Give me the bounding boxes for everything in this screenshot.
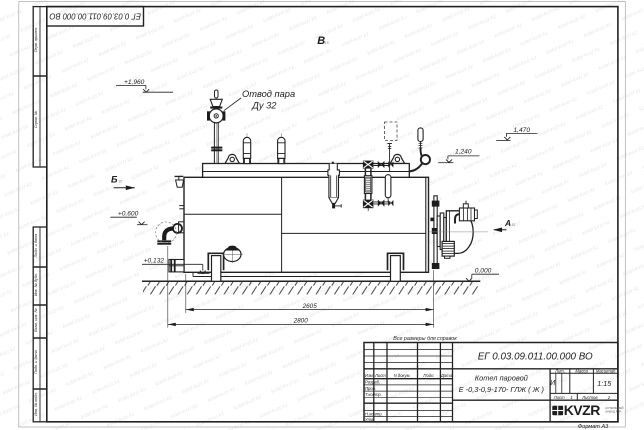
svg-text:kotel-kvzr.kz: kotel-kvzr.kz	[280, 97, 310, 115]
svg-text:kotel-kvzr.kz: kotel-kvzr.kz	[616, 145, 644, 163]
svg-text:kotel-kvzr.kz: kotel-kvzr.kz	[0, 33, 12, 51]
svg-text:kotel-kvzr.kz: kotel-kvzr.kz	[111, 271, 141, 289]
svg-text:kotel-kvzr.kz: kotel-kvzr.kz	[443, 261, 473, 279]
svg-text:kotel-kvzr.kz: kotel-kvzr.kz	[596, 252, 626, 270]
svg-text:kotel-kvzr.kz: kotel-kvzr.kz	[166, 345, 196, 363]
svg-text:Подп.: Подп.	[423, 373, 434, 378]
svg-text:kotel-kvzr.kz: kotel-kvzr.kz	[319, 336, 349, 354]
svg-text:kotel-kvzr.kz: kotel-kvzr.kz	[609, 30, 639, 48]
svg-text:ЕГ 0.03.09.011.00.000 ВО: ЕГ 0.03.09.011.00.000 ВО	[49, 12, 141, 21]
svg-text:kotel-kvzr.kz: kotel-kvzr.kz	[586, 79, 616, 97]
svg-text:Лит.: Лит.	[554, 368, 565, 373]
svg-text:kotel-kvzr.kz: kotel-kvzr.kz	[494, 22, 524, 40]
svg-text:kotel-kvzr.kz: kotel-kvzr.kz	[266, 64, 296, 82]
svg-text:kotel-kvzr.kz: kotel-kvzr.kz	[534, 63, 564, 81]
svg-text:kotel-kvzr.kz: kotel-kvzr.kz	[355, 64, 385, 82]
svg-text:kotel-kvzr.kz: kotel-kvzr.kz	[485, 104, 515, 122]
svg-text:kotel-kvzr.kz: kotel-kvzr.kz	[282, 353, 312, 371]
svg-text:kotel-kvzr.kz: kotel-kvzr.kz	[230, 336, 260, 354]
svg-text:kotel-kvzr.kz: kotel-kvzr.kz	[269, 122, 299, 140]
svg-text:kotel-kvzr.kz: kotel-kvzr.kz	[318, 81, 348, 99]
svg-text:Б: Б	[111, 175, 118, 185]
svg-text:kotel-kvzr.kz: kotel-kvzr.kz	[0, 346, 17, 364]
svg-text:kotel-kvzr.kz: kotel-kvzr.kz	[0, 123, 30, 141]
svg-text:kotel-kvzr.kz: kotel-kvzr.kz	[332, 113, 362, 131]
svg-text:1,470: 1,470	[514, 127, 531, 134]
svg-text:kotel-kvzr.kz: kotel-kvzr.kz	[233, 394, 263, 412]
svg-text:kotel-kvzr.kz: kotel-kvzr.kz	[510, 310, 540, 328]
svg-text:kotel-kvzr.kz: kotel-kvzr.kz	[456, 39, 486, 57]
svg-text:kotel-kvzr.kz: kotel-kvzr.kz	[635, 38, 644, 56]
svg-text:kotel-kvzr.kz: kotel-kvzr.kz	[67, 173, 97, 191]
svg-text:kotel-kvzr.kz: kotel-kvzr.kz	[88, 321, 118, 339]
svg-text:kotel-kvzr.kz: kotel-kvzr.kz	[394, 303, 424, 321]
svg-text:kotel-kvzr.kz: kotel-kvzr.kz	[329, 56, 359, 74]
svg-text:kotel-kvzr.kz: kotel-kvzr.kz	[199, 15, 229, 33]
svg-text:kotel-kvzr.kz: kotel-kvzr.kz	[54, 395, 84, 413]
svg-text:kotel-kvzr.kz: kotel-kvzr.kz	[557, 13, 587, 31]
svg-text:kotel-kvzr.kz: kotel-kvzr.kz	[129, 362, 159, 380]
svg-text:kotel-kvzr.kz: kotel-kvzr.kz	[251, 31, 281, 49]
svg-text:kotel-kvzr.kz: kotel-kvzr.kz	[85, 263, 115, 281]
svg-text:kotel-kvzr.kz: kotel-kvzr.kz	[0, 58, 1, 76]
svg-text:kotel-kvzr.kz: kotel-kvzr.kz	[401, 418, 431, 430]
svg-text:kotel-kvzr.kz: kotel-kvzr.kz	[430, 31, 460, 49]
svg-text:kotel-kvzr.kz: kotel-kvzr.kz	[288, 15, 318, 33]
svg-text:kotel-kvzr.kz: kotel-kvzr.kz	[619, 203, 644, 221]
svg-text:kotel-kvzr.kz: kotel-kvzr.kz	[480, 245, 510, 263]
svg-text:kotel-kvzr.kz: kotel-kvzr.kz	[637, 293, 644, 311]
svg-text:Т.контр.: Т.контр.	[365, 392, 382, 397]
svg-text:Лист: Лист	[374, 373, 386, 378]
svg-text:ЗАВОД РЗР: ЗАВОД РЗР	[605, 410, 621, 414]
svg-text:kotel-kvzr.kz: kotel-kvzr.kz	[0, 264, 25, 282]
svg-text:kotel-kvzr.kz: kotel-kvzr.kz	[155, 370, 185, 388]
svg-text:Справ. №: Справ. №	[34, 111, 38, 128]
svg-text:kotel-kvzr.kz: kotel-kvzr.kz	[575, 104, 605, 122]
svg-text:kotel-kvzr.kz: kotel-kvzr.kz	[463, 154, 493, 172]
svg-text:kotel-kvzr.kz: kotel-kvzr.kz	[0, 8, 24, 26]
svg-text:kotel-kvzr.kz: kotel-kvzr.kz	[0, 148, 19, 166]
svg-text:kotel-kvzr.kz: kotel-kvzr.kz	[629, 376, 644, 394]
svg-text:Листов: Листов	[581, 395, 598, 400]
svg-text:kotel-kvzr.kz: kotel-kvzr.kz	[536, 318, 566, 336]
svg-text:kotel-kvzr.kz: kotel-kvzr.kz	[490, 418, 520, 430]
svg-text:kotel-kvzr.kz: kotel-kvzr.kz	[484, 302, 514, 320]
svg-text:kotel-kvzr.kz: kotel-kvzr.kz	[0, 115, 4, 133]
svg-text:kotel-kvzr.kz: kotel-kvzr.kz	[56, 197, 86, 215]
svg-text:kotel-kvzr.kz: kotel-kvzr.kz	[127, 106, 157, 124]
svg-text:kotel-kvzr.kz: kotel-kvzr.kz	[345, 344, 375, 362]
svg-text:kotel-kvzr.kz: kotel-kvzr.kz	[578, 162, 608, 180]
svg-text:0,000: 0,000	[475, 268, 492, 275]
svg-text:kotel-kvzr.kz: kotel-kvzr.kz	[562, 327, 592, 345]
svg-text:kotel-kvzr.kz: kotel-kvzr.kz	[142, 139, 172, 157]
svg-text:kotel-kvzr.kz: kotel-kvzr.kz	[458, 294, 488, 312]
svg-text:kotel-kvzr.kz: kotel-kvzr.kz	[5, 0, 35, 1]
svg-text:kotel-kvzr.kz: kotel-kvzr.kz	[214, 48, 244, 66]
svg-text:kotel-kvzr.kz: kotel-kvzr.kz	[75, 90, 105, 108]
svg-text:kotel-kvzr.kz: kotel-kvzr.kz	[612, 87, 642, 105]
svg-text:kotel-kvzr.kz: kotel-kvzr.kz	[77, 346, 107, 364]
svg-text:Котел паровой: Котел паровой	[475, 374, 528, 383]
svg-text:kotel-kvzr.kz: kotel-kvzr.kz	[500, 137, 530, 155]
svg-text:Инв. № подл.: Инв. № подл.	[34, 392, 38, 416]
svg-text:kotel-kvzr.kz: kotel-kvzr.kz	[202, 73, 232, 91]
svg-text:Дата: Дата	[440, 373, 453, 378]
svg-text:2800: 2800	[293, 318, 309, 325]
svg-text:kotel-kvzr.kz: kotel-kvzr.kz	[529, 203, 559, 221]
svg-text:1,240: 1,240	[455, 148, 472, 155]
svg-text:kotel-kvzr.kz: kotel-kvzr.kz	[326, 0, 356, 16]
svg-text:Отвод пара: Отвод пара	[242, 89, 295, 99]
svg-text:kotel-kvzr.kz: kotel-kvzr.kz	[308, 361, 338, 379]
svg-text:kotel-kvzr.kz: kotel-kvzr.kz	[72, 32, 102, 50]
svg-text:kotel-kvzr.kz: kotel-kvzr.kz	[404, 22, 434, 40]
svg-text:kotel-kvzr.kz: kotel-kvzr.kz	[236, 0, 266, 16]
svg-text:kotel-kvzr.kz: kotel-kvzr.kz	[114, 329, 144, 347]
svg-text:kotel-kvzr.kz: kotel-kvzr.kz	[381, 72, 411, 90]
svg-text:kotel-kvzr.kz: kotel-kvzr.kz	[90, 123, 120, 141]
svg-text:kotel-kvzr.kz: kotel-kvzr.kz	[204, 328, 234, 346]
svg-text:kotel-kvzr.kz: kotel-kvzr.kz	[292, 72, 322, 90]
svg-text:kotel-kvzr.kz: kotel-kvzr.kz	[126, 304, 156, 322]
svg-text:kotel-kvzr.kz: kotel-kvzr.kz	[541, 178, 571, 196]
svg-text:15: 15	[512, 223, 516, 227]
svg-text:kotel-kvzr.kz: kotel-kvzr.kz	[555, 211, 585, 229]
svg-text:kotel-kvzr.kz: kotel-kvzr.kz	[178, 320, 208, 338]
svg-text:kotel-kvzr.kz: kotel-kvzr.kz	[625, 318, 644, 336]
svg-text:kotel-kvzr.kz: kotel-kvzr.kz	[150, 57, 180, 75]
svg-text:Утв.: Утв.	[365, 417, 375, 422]
svg-text:kotel-kvzr.kz: kotel-kvzr.kz	[95, 0, 125, 1]
svg-text:kotel-kvzr.kz: kotel-kvzr.kz	[445, 63, 475, 81]
svg-text:Н.контр.: Н.контр.	[365, 411, 383, 416]
svg-text:kotel-kvzr.kz: kotel-kvzr.kz	[205, 131, 235, 149]
svg-text:kotel-kvzr.kz: kotel-kvzr.kz	[222, 419, 252, 430]
svg-text:kotel-kvzr.kz: kotel-kvzr.kz	[293, 328, 323, 346]
svg-text:kotel-kvzr.kz: kotel-kvzr.kz	[598, 54, 628, 72]
svg-text:kotel-kvzr.kz: kotel-kvzr.kz	[44, 222, 74, 240]
svg-text:kotel-kvzr.kz: kotel-kvzr.kz	[572, 46, 602, 64]
svg-text:kotel-kvzr.kz: kotel-kvzr.kz	[103, 354, 133, 372]
svg-text:kotel-kvzr.kz: kotel-kvzr.kz	[176, 65, 206, 83]
svg-text:kotel-kvzr.kz: kotel-kvzr.kz	[0, 288, 14, 306]
svg-text:kotel-kvzr.kz: kotel-kvzr.kz	[474, 129, 504, 147]
svg-text:kotel-kvzr.kz: kotel-kvzr.kz	[471, 72, 501, 90]
svg-text:kotel-kvzr.kz: kotel-kvzr.kz	[296, 386, 326, 404]
svg-text:kotel-kvzr.kz: kotel-kvzr.kz	[396, 105, 426, 123]
svg-text:kotel-kvzr.kz: kotel-kvzr.kz	[502, 393, 532, 411]
svg-text:kotel-kvzr.kz: kotel-kvzr.kz	[507, 253, 537, 271]
svg-text:А: А	[504, 218, 511, 228]
svg-text:kotel-kvzr.kz: kotel-kvzr.kz	[468, 14, 498, 32]
svg-text:kotel-kvzr.kz: kotel-kvzr.kz	[322, 394, 352, 412]
svg-text:kotel-kvzr.kz: kotel-kvzr.kz	[98, 41, 128, 59]
svg-text:kotel-kvzr.kz: kotel-kvzr.kz	[0, 231, 11, 249]
svg-text:kotel-kvzr.kz: kotel-kvzr.kz	[334, 369, 364, 387]
svg-text:kotel-kvzr.kz: kotel-kvzr.kz	[306, 105, 336, 123]
svg-text:kotel-kvzr.kz: kotel-kvzr.kz	[341, 31, 371, 49]
svg-text:kotel-kvzr.kz: kotel-kvzr.kz	[153, 114, 183, 132]
svg-text:kotel-kvzr.kz: kotel-kvzr.kz	[168, 147, 198, 165]
svg-text:kotel-kvzr.kz: kotel-kvzr.kz	[147, 0, 177, 17]
svg-text:15: 15	[118, 180, 122, 184]
svg-text:kotel-kvzr.kz: kotel-kvzr.kz	[124, 49, 154, 67]
svg-text:kotel-kvzr.kz: kotel-kvzr.kz	[559, 269, 589, 287]
svg-text:kotel-kvzr.kz: kotel-kvzr.kz	[495, 277, 525, 295]
svg-text:И: И	[550, 378, 556, 387]
svg-text:kotel-kvzr.kz: kotel-kvzr.kz	[29, 189, 59, 207]
svg-text:kotel-kvzr.kz: kotel-kvzr.kz	[585, 277, 615, 295]
svg-text:kotel-kvzr.kz: kotel-kvzr.kz	[96, 238, 126, 256]
svg-text:kotel-kvzr.kz: kotel-kvzr.kz	[344, 89, 374, 107]
svg-text:kotel-kvzr.kz: kotel-kvzr.kz	[422, 113, 452, 131]
svg-text:kotel-kvzr.kz: kotel-kvzr.kz	[411, 138, 441, 156]
svg-text:kotel-kvzr.kz: kotel-kvzr.kz	[568, 0, 598, 6]
svg-text:kotel-kvzr.kz: kotel-kvzr.kz	[65, 370, 95, 388]
svg-text:kotel-kvzr.kz: kotel-kvzr.kz	[627, 120, 644, 138]
svg-text:kotel-kvzr.kz: kotel-kvzr.kz	[560, 71, 590, 89]
svg-text:Масса: Масса	[575, 368, 588, 373]
svg-text:kotel-kvzr.kz: kotel-kvzr.kz	[192, 353, 222, 371]
svg-text:kotel-kvzr.kz: kotel-kvzr.kz	[378, 14, 408, 32]
svg-text:kotel-kvzr.kz: kotel-kvzr.kz	[497, 80, 527, 98]
svg-text:kotel-kvzr.kz: kotel-kvzr.kz	[352, 6, 382, 24]
svg-text:kotel-kvzr.kz: kotel-kvzr.kz	[181, 378, 211, 396]
svg-text:kotel-kvzr.kz: kotel-kvzr.kz	[321, 138, 351, 156]
svg-text:kotel-kvzr.kz: kotel-kvzr.kz	[62, 313, 92, 331]
svg-text:kotel-kvzr.kz: kotel-kvzr.kz	[371, 352, 401, 370]
svg-text:kotel-kvzr.kz: kotel-kvzr.kz	[624, 63, 644, 81]
svg-text:kotel-kvzr.kz: kotel-kvzr.kz	[47, 280, 77, 298]
svg-text:kotel-kvzr.kz: kotel-kvzr.kz	[243, 114, 273, 132]
svg-text:kotel-kvzr.kz: kotel-kvzr.kz	[544, 236, 574, 254]
svg-text:kotel-kvzr.kz: kotel-kvzr.kz	[34, 49, 64, 67]
svg-text:kotel-kvzr.kz: kotel-kvzr.kz	[59, 255, 89, 273]
svg-text:kotel-kvzr.kz: kotel-kvzr.kz	[448, 121, 478, 139]
svg-text:1:15: 1:15	[597, 379, 612, 388]
svg-text:kotel-kvzr.kz: kotel-kvzr.kz	[2, 379, 32, 397]
svg-text:kotel-kvzr.kz: kotel-kvzr.kz	[567, 186, 597, 204]
svg-text:kotel-kvzr.kz: kotel-kvzr.kz	[0, 91, 15, 109]
svg-text:kotel-kvzr.kz: kotel-kvzr.kz	[518, 228, 548, 246]
svg-text:kotel-kvzr.kz: kotel-kvzr.kz	[195, 411, 225, 429]
svg-text:kotel-kvzr.kz: kotel-kvzr.kz	[117, 387, 147, 405]
svg-text:kotel-kvzr.kz: kotel-kvzr.kz	[464, 409, 494, 427]
svg-text:kotel-kvzr.kz: kotel-kvzr.kz	[256, 345, 286, 363]
svg-text:kotel-kvzr.kz: kotel-kvzr.kz	[130, 164, 160, 182]
svg-text:kotel-kvzr.kz: kotel-kvzr.kz	[78, 148, 108, 166]
svg-text:kotel-kvzr.kz: kotel-kvzr.kz	[599, 310, 629, 328]
svg-text:Разраб.: Разраб.	[365, 380, 380, 385]
svg-text:kotel-kvzr.kz: kotel-kvzr.kz	[173, 7, 203, 25]
svg-text:kotel-kvzr.kz: kotel-kvzr.kz	[46, 24, 76, 42]
svg-text:kotel-kvzr.kz: kotel-kvzr.kz	[82, 205, 112, 223]
svg-text:kotel-kvzr.kz: kotel-kvzr.kz	[0, 321, 28, 339]
svg-text:kotel-kvzr.kz: kotel-kvzr.kz	[38, 107, 68, 125]
svg-text:kotel-kvzr.kz: kotel-kvzr.kz	[225, 23, 255, 41]
svg-text:kotel-kvzr.kz: kotel-kvzr.kz	[370, 97, 400, 115]
svg-text:kotel-kvzr.kz: kotel-kvzr.kz	[87, 65, 117, 83]
svg-text:kotel-kvzr.kz: kotel-kvzr.kz	[533, 261, 563, 279]
svg-text:kotel-kvzr.kz: kotel-kvzr.kz	[538, 121, 568, 139]
svg-text:Лист: Лист	[553, 395, 565, 400]
svg-text:kotel-kvzr.kz: kotel-kvzr.kz	[331, 311, 361, 329]
svg-text:kotel-kvzr.kz: kotel-kvzr.kz	[60, 57, 90, 75]
svg-text:kotel-kvzr.kz: kotel-kvzr.kz	[621, 5, 644, 23]
svg-text:kotel-kvzr.kz: kotel-kvzr.kz	[140, 337, 170, 355]
svg-text:kotel-kvzr.kz: kotel-kvzr.kz	[531, 5, 561, 23]
svg-text:kotel-kvzr.kz: kotel-kvzr.kz	[13, 354, 43, 372]
svg-text:kotel-kvzr.kz: kotel-kvzr.kz	[588, 335, 618, 353]
svg-text:kotel-kvzr.kz: kotel-kvzr.kz	[446, 319, 476, 337]
svg-text:kotel-kvzr.kz: kotel-kvzr.kz	[267, 320, 297, 338]
svg-text:kotel-kvzr.kz: kotel-kvzr.kz	[0, 173, 7, 191]
svg-text:kotel-kvzr.kz: kotel-kvzr.kz	[520, 30, 550, 48]
svg-text:kotel-kvzr.kz: kotel-kvzr.kz	[607, 227, 637, 245]
svg-text:kotel-kvzr.kz: kotel-kvzr.kz	[161, 32, 191, 50]
svg-text:kotel-kvzr.kz: kotel-kvzr.kz	[51, 337, 81, 355]
svg-text:kotel-kvzr.kz: kotel-kvzr.kz	[244, 369, 274, 387]
svg-text:kotel-kvzr.kz: kotel-kvzr.kz	[384, 130, 414, 148]
svg-text:+1,960: +1,960	[124, 79, 145, 86]
svg-text:kotel-kvzr.kz: kotel-kvzr.kz	[259, 402, 289, 420]
svg-text:kotel-kvzr.kz: kotel-kvzr.kz	[3, 181, 33, 199]
svg-text:kotel-kvzr.kz: kotel-kvzr.kz	[311, 418, 341, 430]
svg-text:kotel-kvzr.kz: kotel-kvzr.kz	[516, 426, 546, 430]
svg-text:kotel-kvzr.kz: kotel-kvzr.kz	[393, 47, 423, 65]
svg-text:Ду 32: Ду 32	[251, 101, 277, 111]
svg-text:kotel-kvzr.kz: kotel-kvzr.kz	[70, 230, 100, 248]
svg-text:kotel-kvzr.kz: kotel-kvzr.kz	[498, 335, 528, 353]
svg-text:Изм: Изм	[365, 373, 373, 378]
svg-text:2605: 2605	[302, 303, 318, 310]
svg-text:kotel-kvzr.kz: kotel-kvzr.kz	[152, 312, 182, 330]
svg-text:kotel-kvzr.kz: kotel-kvzr.kz	[295, 130, 325, 148]
svg-text:kotel-kvzr.kz: kotel-kvzr.kz	[451, 179, 481, 197]
svg-text:kotel-kvzr.kz: kotel-kvzr.kz	[277, 40, 307, 58]
svg-text:Подп. и дата: Подп. и дата	[34, 234, 38, 258]
svg-text:kotel-kvzr.kz: kotel-kvzr.kz	[143, 395, 173, 413]
svg-text:kotel-kvzr.kz: kotel-kvzr.kz	[611, 285, 641, 303]
svg-text:+0,600: +0,600	[118, 210, 139, 217]
svg-text:kotel-kvzr.kz: kotel-kvzr.kz	[187, 40, 217, 58]
svg-text:1: 1	[570, 395, 572, 400]
svg-text:kotel-kvzr.kz: kotel-kvzr.kz	[101, 98, 131, 116]
svg-text:Масштаб: Масштаб	[596, 368, 616, 373]
svg-text:kotel-kvzr.kz: kotel-kvzr.kz	[573, 302, 603, 320]
svg-text:kotel-kvzr.kz: kotel-kvzr.kz	[477, 187, 507, 205]
svg-text:+0,132: +0,132	[144, 258, 165, 265]
svg-text:kotel-kvzr.kz: kotel-kvzr.kz	[285, 410, 315, 428]
svg-text:Все размеры для справок: Все размеры для справок	[393, 336, 457, 342]
svg-text:kotel-kvzr.kz: kotel-kvzr.kz	[104, 156, 134, 174]
svg-text:kotel-kvzr.kz: kotel-kvzr.kz	[241, 312, 271, 330]
svg-text:kotel-kvzr.kz: kotel-kvzr.kz	[634, 236, 644, 254]
svg-text:kotel-kvzr.kz: kotel-kvzr.kz	[357, 319, 387, 337]
svg-text:kotel-kvzr.kz: kotel-kvzr.kz	[52, 140, 82, 158]
svg-text:kotel-kvzr.kz: kotel-kvzr.kz	[640, 351, 644, 369]
svg-text:kotel-kvzr.kz: kotel-kvzr.kz	[581, 219, 611, 237]
svg-text:kotel-kvzr.kz: kotel-kvzr.kz	[546, 38, 576, 56]
svg-text:kotel-kvzr.kz: kotel-kvzr.kz	[590, 137, 620, 155]
svg-text:kotel-kvzr.kz: kotel-kvzr.kz	[630, 178, 644, 196]
svg-text:kotel-kvzr.kz: kotel-kvzr.kz	[412, 393, 442, 411]
svg-text:kotel-kvzr.kz: kotel-kvzr.kz	[425, 171, 455, 189]
svg-text:kotel-kvzr.kz: kotel-kvzr.kz	[570, 244, 600, 262]
svg-text:kotel-kvzr.kz: kotel-kvzr.kz	[479, 0, 509, 7]
svg-text:kotel-kvzr.kz: kotel-kvzr.kz	[508, 55, 538, 73]
svg-text:kotel-kvzr.kz: kotel-kvzr.kz	[303, 48, 333, 66]
svg-text:kotel-kvzr.kz: kotel-kvzr.kz	[262, 7, 292, 25]
svg-text:kotel-kvzr.kz: kotel-kvzr.kz	[7, 239, 37, 257]
svg-text:kotel-kvzr.kz: kotel-kvzr.kz	[26, 132, 56, 150]
svg-text:kotel-kvzr.kz: kotel-kvzr.kz	[49, 82, 79, 100]
svg-text:kotel-kvzr.kz: kotel-kvzr.kz	[638, 95, 644, 113]
svg-text:kotel-kvzr.kz: kotel-kvzr.kz	[523, 88, 553, 106]
svg-text:kotel-kvzr.kz: kotel-kvzr.kz	[415, 0, 445, 15]
svg-text:kotel-kvzr.kz: kotel-kvzr.kz	[435, 344, 465, 362]
svg-text:ЕГ 0.03.09.011.00.000 ВО: ЕГ 0.03.09.011.00.000 ВО	[478, 352, 593, 363]
svg-text:kotel-kvzr.kz: kotel-kvzr.kz	[179, 122, 209, 140]
svg-text:kotel-kvzr.kz: kotel-kvzr.kz	[367, 39, 397, 57]
svg-text:kotel-kvzr.kz: kotel-kvzr.kz	[99, 296, 129, 314]
svg-text:Пров.: Пров.	[365, 386, 376, 391]
svg-text:kotel-kvzr.kz: kotel-kvzr.kz	[515, 170, 545, 188]
svg-text:Перв. примен.: Перв. примен.	[34, 27, 38, 52]
svg-text:kotel-kvzr.kz: kotel-kvzr.kz	[145, 197, 175, 215]
svg-text:15: 15	[325, 41, 329, 45]
svg-text:Инв. № дубл.: Инв. № дубл.	[34, 273, 38, 296]
svg-text:KVZR: KVZR	[564, 402, 601, 418]
svg-text:kotel-kvzr.kz: kotel-kvzr.kz	[207, 386, 237, 404]
svg-text:kotel-kvzr.kz: kotel-kvzr.kz	[526, 145, 556, 163]
svg-text:kotel-kvzr.kz: kotel-kvzr.kz	[0, 313, 2, 331]
svg-text:kotel-kvzr.kz: kotel-kvzr.kz	[549, 96, 579, 114]
svg-text:kotel-kvzr.kz: kotel-kvzr.kz	[119, 189, 149, 207]
svg-text:kotel-kvzr.kz: kotel-kvzr.kz	[420, 311, 450, 329]
svg-text:kotel-kvzr.kz: kotel-kvzr.kz	[358, 122, 388, 140]
svg-text:kotel-kvzr.kz: kotel-kvzr.kz	[240, 56, 270, 74]
svg-text:kotel-kvzr.kz: kotel-kvzr.kz	[604, 170, 634, 188]
svg-text:Подп. и дата: Подп. и дата	[34, 350, 38, 374]
svg-text:kotel-kvzr.kz: kotel-kvzr.kz	[552, 154, 582, 172]
svg-text:kotel-kvzr.kz: kotel-kvzr.kz	[564, 129, 594, 147]
svg-text:kotel-kvzr.kz: kotel-kvzr.kz	[547, 294, 577, 312]
svg-text:Е -0,3-0,9-170- ГЛЖ ( Ж ): Е -0,3-0,9-170- ГЛЖ ( Ж )	[459, 385, 545, 394]
svg-text:kotel-kvzr.kz: kotel-kvzr.kz	[0, 404, 20, 422]
svg-text:kotel-kvzr.kz: kotel-kvzr.kz	[441, 6, 471, 24]
svg-text:kotel-kvzr.kz: kotel-kvzr.kz	[215, 304, 245, 322]
svg-text:kotel-kvzr.kz: kotel-kvzr.kz	[583, 22, 613, 40]
svg-text:kotel-kvzr.kz: kotel-kvzr.kz	[0, 66, 27, 84]
svg-text:kotel-kvzr.kz: kotel-kvzr.kz	[503, 195, 533, 213]
svg-text:kotel-kvzr.kz: kotel-kvzr.kz	[106, 411, 136, 429]
svg-text:kotel-kvzr.kz: kotel-kvzr.kz	[169, 403, 199, 421]
svg-text:kotel-kvzr.kz: kotel-kvzr.kz	[91, 378, 121, 396]
svg-text:kotel-kvzr.kz: kotel-kvzr.kz	[116, 131, 146, 149]
svg-text:kotel-kvzr.kz: kotel-kvzr.kz	[39, 362, 69, 380]
svg-text:kotel-kvzr.kz: kotel-kvzr.kz	[482, 47, 512, 65]
svg-text:kotel-kvzr.kz: kotel-kvzr.kz	[218, 361, 248, 379]
svg-text:Формат А3: Формат А3	[578, 424, 609, 430]
svg-text:kotel-kvzr.kz: kotel-kvzr.kz	[505, 0, 535, 15]
svg-text:kotel-kvzr.kz: kotel-kvzr.kz	[419, 55, 449, 73]
svg-text:kotel-kvzr.kz: kotel-kvzr.kz	[73, 288, 103, 306]
svg-text:kotel-kvzr.kz: kotel-kvzr.kz	[270, 377, 300, 395]
svg-text:kotel-kvzr.kz: kotel-kvzr.kz	[64, 115, 94, 133]
